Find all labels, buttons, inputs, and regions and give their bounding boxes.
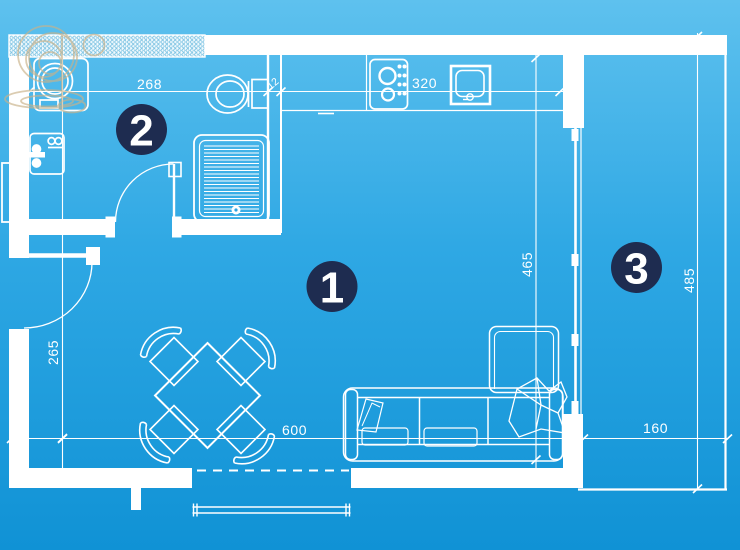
svg-text:160: 160 xyxy=(643,420,668,436)
svg-text:600: 600 xyxy=(282,422,307,438)
svg-text:465: 465 xyxy=(519,252,535,277)
svg-text:2: 2 xyxy=(129,107,153,156)
svg-text:485: 485 xyxy=(681,268,697,293)
svg-text:268: 268 xyxy=(137,76,162,92)
svg-text:1: 1 xyxy=(320,264,344,313)
svg-text:320: 320 xyxy=(412,75,437,91)
svg-text:265: 265 xyxy=(45,340,61,365)
svg-text:3: 3 xyxy=(624,245,648,294)
